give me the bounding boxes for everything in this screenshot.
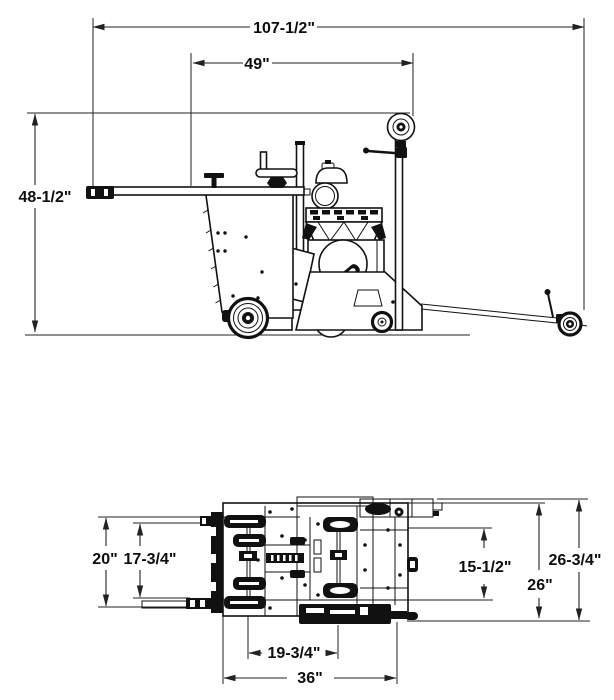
drawing-page: 107-1/2" 49" 48-1/2" <box>0 0 614 700</box>
dim-base-length-label: 36" <box>297 670 322 687</box>
t-bolt <box>204 173 224 188</box>
dim-rear-inner-width-label: 15-1/2" <box>459 559 512 576</box>
side-view-machine <box>25 114 587 338</box>
dim-rear-overall-width-label: 26-3/4" <box>549 552 602 569</box>
dim-rear-width-label: 26" <box>527 577 552 594</box>
pointer-mast <box>396 133 403 330</box>
plan-view-machine <box>142 497 442 624</box>
dim-overall-height-label: 48-1/2" <box>19 189 72 206</box>
engine-overhang <box>360 499 442 517</box>
dim-overall-length-label: 107-1/2" <box>253 20 315 37</box>
dim-axle-spacing-label: 19-3/4" <box>268 645 321 662</box>
dim-body-length-label: 49" <box>244 56 269 73</box>
dim-front-inner-width-label: 17-3/4" <box>124 551 177 568</box>
handle-bar <box>113 187 304 195</box>
handwheel <box>256 152 297 188</box>
dim-front-track-width-label: 20" <box>92 551 117 568</box>
rear-pointer <box>421 289 587 335</box>
drawing-canvas: 107-1/2" 49" 48-1/2" <box>0 0 614 700</box>
muffler <box>365 503 391 515</box>
engine <box>302 160 386 290</box>
depth-gauge-pole <box>297 143 304 255</box>
dimension-rear-inner-width: 15-1/2" <box>403 528 511 600</box>
handle-grip <box>86 186 114 199</box>
dimension-front-inner-width: 17-3/4" <box>124 523 213 598</box>
